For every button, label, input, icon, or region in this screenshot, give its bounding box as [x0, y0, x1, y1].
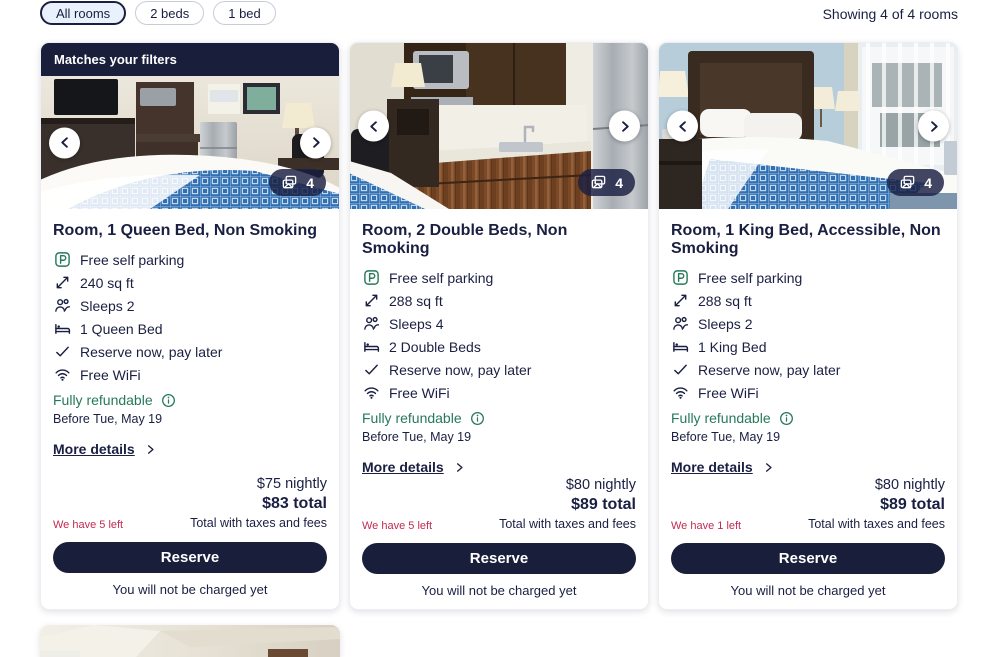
- refundable-row: Fully refundable: [362, 409, 636, 427]
- amenity-parking: Free self parking: [53, 248, 327, 271]
- room-title: Room, 1 Queen Bed, Non Smoking: [53, 222, 327, 240]
- photo-count: 4: [924, 175, 932, 191]
- photo-count-badge[interactable]: 4: [887, 169, 944, 196]
- reserve-button[interactable]: Reserve: [671, 543, 945, 574]
- room-photo[interactable]: 4: [41, 76, 339, 209]
- room-photo-partial: [40, 625, 340, 657]
- chevron-right-icon: [618, 119, 632, 133]
- chevron-right-icon: [145, 444, 156, 455]
- amenity-pay-later: Reserve now, pay later: [362, 358, 636, 381]
- chevron-left-icon: [676, 119, 690, 133]
- amenity-label: Reserve now, pay later: [389, 362, 531, 378]
- room-card: Matches your filters: [40, 42, 340, 610]
- room-filter-chips: All rooms 2 beds 1 bed: [40, 1, 276, 25]
- sleeps-icon: [362, 315, 380, 333]
- amenity-label: 2 Double Beds: [389, 339, 481, 355]
- amenity-label: Sleeps 2: [80, 298, 134, 314]
- photo-count-badge[interactable]: 4: [578, 169, 635, 196]
- refundable-row: Fully refundable: [671, 409, 945, 427]
- room-card-partial[interactable]: [40, 625, 340, 657]
- amenity-wifi: Free WiFi: [362, 381, 636, 404]
- amenity-label: 288 sq ft: [698, 293, 752, 309]
- scarcity-label: We have 5 left: [362, 520, 432, 532]
- amenity-label: Free self parking: [80, 252, 184, 268]
- room-results-page: All rooms 2 beds 1 bed Showing 4 of 4 ro…: [0, 0, 985, 657]
- check-icon: [53, 343, 71, 361]
- no-charge-note: You will not be charged yet: [362, 583, 636, 598]
- carousel-next-button[interactable]: [609, 111, 640, 142]
- amenity-label: Reserve now, pay later: [80, 344, 222, 360]
- refundable-row: Fully refundable: [53, 391, 327, 409]
- carousel-next-button[interactable]: [300, 127, 331, 158]
- refundable-note: Before Tue, May 19: [53, 412, 327, 426]
- amenity-label: Free self parking: [698, 270, 802, 286]
- room-card: 4 Room, 1 King Bed, Accessible, Non Smok…: [658, 42, 958, 610]
- sleeps-icon: [671, 315, 689, 333]
- room-title: Room, 1 King Bed, Accessible, Non Smokin…: [671, 222, 945, 258]
- more-details-link[interactable]: More details: [671, 459, 774, 475]
- total-price: $89 total: [671, 495, 945, 515]
- results-count-label: Showing 4 of 4 rooms: [823, 6, 958, 22]
- refundable-label: Fully refundable: [671, 410, 771, 426]
- carousel-prev-button[interactable]: [49, 127, 80, 158]
- amenity-label: 1 King Bed: [698, 339, 767, 355]
- refundable-note: Before Tue, May 19: [671, 430, 945, 444]
- reserve-button[interactable]: Reserve: [362, 543, 636, 574]
- amenity-label: 1 Queen Bed: [80, 321, 163, 337]
- amenity-label: Sleeps 2: [698, 316, 752, 332]
- room-title: Room, 2 Double Beds, Non Smoking: [362, 222, 636, 258]
- photo-count-badge[interactable]: 4: [269, 169, 326, 196]
- amenity-label: Free self parking: [389, 270, 493, 286]
- gallery-icon: [590, 174, 607, 191]
- amenity-size: 288 sq ft: [671, 289, 945, 312]
- chevron-right-icon: [927, 119, 941, 133]
- refundable-note: Before Tue, May 19: [362, 430, 636, 444]
- wifi-icon: [53, 366, 71, 384]
- filter-chip-2-beds[interactable]: 2 beds: [135, 1, 204, 25]
- scarcity-label: We have 1 left: [671, 520, 741, 532]
- amenity-label: Free WiFi: [389, 385, 450, 401]
- room-size-icon: [362, 292, 380, 310]
- chevron-right-icon: [309, 136, 323, 150]
- nightly-price: $80 nightly: [671, 475, 945, 495]
- matches-filters-banner: Matches your filters: [41, 43, 339, 76]
- info-icon[interactable]: [778, 409, 796, 427]
- amenity-size: 240 sq ft: [53, 271, 327, 294]
- total-price: $89 total: [362, 495, 636, 515]
- pricing-block: We have 5 left $80 nightly $89 total Tot…: [362, 475, 636, 535]
- amenity-label: Reserve now, pay later: [698, 362, 840, 378]
- reserve-button[interactable]: Reserve: [53, 542, 327, 573]
- amenity-wifi: Free WiFi: [53, 363, 327, 386]
- nightly-price: $80 nightly: [362, 475, 636, 495]
- bed-icon: [53, 320, 71, 338]
- gallery-icon: [899, 174, 916, 191]
- chevron-left-icon: [367, 119, 381, 133]
- check-icon: [671, 361, 689, 379]
- amenity-pay-later: Reserve now, pay later: [53, 340, 327, 363]
- amenity-beds: 1 Queen Bed: [53, 317, 327, 340]
- parking-icon: [53, 251, 71, 269]
- nightly-price: $75 nightly: [53, 474, 327, 494]
- carousel-prev-button[interactable]: [358, 111, 389, 142]
- bed-icon: [671, 338, 689, 356]
- amenity-parking: Free self parking: [671, 266, 945, 289]
- pricing-block: We have 5 left $75 nightly $83 total Tot…: [53, 474, 327, 534]
- amenity-beds: 1 King Bed: [671, 335, 945, 358]
- room-size-icon: [53, 274, 71, 292]
- amenity-list: Free self parking 288 sq ft Sleeps 2 1 K…: [671, 266, 945, 404]
- no-charge-note: You will not be charged yet: [53, 582, 327, 597]
- sleeps-icon: [53, 297, 71, 315]
- amenity-pay-later: Reserve now, pay later: [671, 358, 945, 381]
- photo-count: 4: [615, 175, 623, 191]
- pricing-block: We have 1 left $80 nightly $89 total Tot…: [671, 475, 945, 535]
- wifi-icon: [362, 384, 380, 402]
- check-icon: [362, 361, 380, 379]
- parking-icon: [671, 269, 689, 287]
- chevron-left-icon: [58, 136, 72, 150]
- amenity-list: Free self parking 240 sq ft Sleeps 2 1 Q…: [53, 248, 327, 386]
- filter-chip-all-rooms[interactable]: All rooms: [40, 1, 126, 25]
- chevron-right-icon: [454, 462, 465, 473]
- no-charge-note: You will not be charged yet: [671, 583, 945, 598]
- amenity-list: Free self parking 288 sq ft Sleeps 4 2 D…: [362, 266, 636, 404]
- bed-icon: [362, 338, 380, 356]
- amenity-sleeps: Sleeps 4: [362, 312, 636, 335]
- amenity-sleeps: Sleeps 2: [53, 294, 327, 317]
- total-price: $83 total: [53, 494, 327, 514]
- amenity-label: 288 sq ft: [389, 293, 443, 309]
- scarcity-label: We have 5 left: [53, 519, 123, 531]
- more-details-link[interactable]: More details: [362, 459, 465, 475]
- amenity-wifi: Free WiFi: [671, 381, 945, 404]
- room-photo[interactable]: 4: [659, 43, 957, 209]
- wifi-icon: [671, 384, 689, 402]
- more-details-label: More details: [671, 459, 753, 475]
- more-details-label: More details: [53, 441, 135, 457]
- more-details-link[interactable]: More details: [53, 441, 156, 457]
- room-size-icon: [671, 292, 689, 310]
- amenity-label: Free WiFi: [80, 367, 141, 383]
- info-icon[interactable]: [469, 409, 487, 427]
- room-card: 4 Room, 2 Double Beds, Non Smoking Free …: [349, 42, 649, 610]
- amenity-label: Free WiFi: [698, 385, 759, 401]
- chevron-right-icon: [763, 462, 774, 473]
- photo-count: 4: [306, 175, 314, 191]
- room-photo[interactable]: 4: [350, 43, 648, 209]
- refundable-label: Fully refundable: [362, 410, 462, 426]
- amenity-parking: Free self parking: [362, 266, 636, 289]
- parking-icon: [362, 269, 380, 287]
- amenity-beds: 2 Double Beds: [362, 335, 636, 358]
- amenity-label: Sleeps 4: [389, 316, 443, 332]
- amenity-sleeps: Sleeps 2: [671, 312, 945, 335]
- amenity-label: 240 sq ft: [80, 275, 134, 291]
- info-icon[interactable]: [160, 391, 178, 409]
- amenity-size: 288 sq ft: [362, 289, 636, 312]
- refundable-label: Fully refundable: [53, 392, 153, 408]
- more-details-label: More details: [362, 459, 444, 475]
- gallery-icon: [281, 174, 298, 191]
- filter-chip-1-bed[interactable]: 1 bed: [213, 1, 276, 25]
- carousel-prev-button[interactable]: [667, 111, 698, 142]
- carousel-next-button[interactable]: [918, 111, 949, 142]
